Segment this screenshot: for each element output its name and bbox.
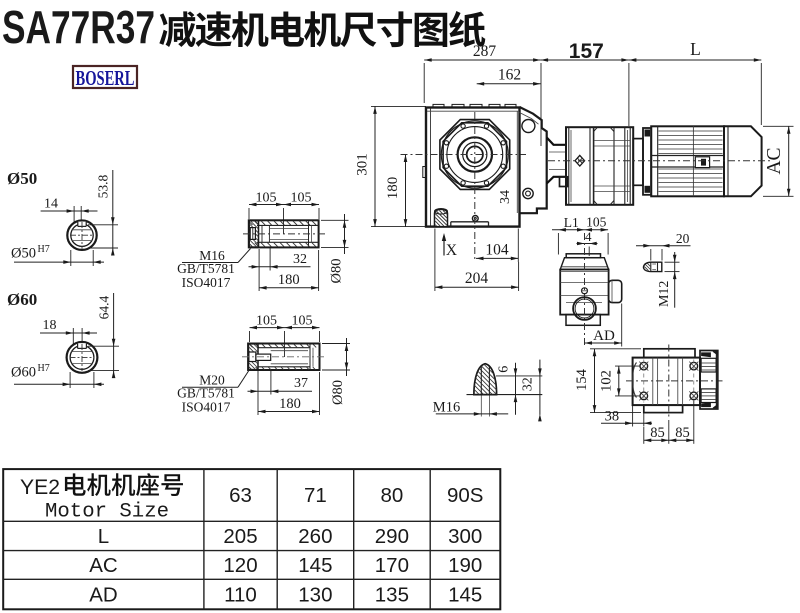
svg-text:120: 120	[223, 554, 257, 577]
svg-text:Motor Size: Motor Size	[45, 501, 169, 524]
svg-text:301: 301	[355, 153, 371, 176]
svg-text:YE2: YE2	[20, 475, 60, 499]
svg-text:53.8: 53.8	[96, 174, 111, 198]
svg-text:204: 204	[465, 270, 489, 287]
svg-text:AC: AC	[89, 554, 118, 577]
svg-text:6: 6	[497, 366, 512, 373]
svg-text:Ø60: Ø60	[7, 290, 37, 309]
svg-text:105: 105	[292, 313, 313, 328]
svg-text:71: 71	[304, 484, 327, 507]
svg-text:154: 154	[574, 368, 590, 391]
svg-text:105: 105	[291, 190, 312, 205]
svg-text:Ø80: Ø80	[330, 380, 346, 405]
svg-text:14: 14	[44, 197, 58, 212]
svg-text:102: 102	[599, 370, 615, 392]
svg-text:M16: M16	[433, 400, 460, 416]
svg-text:180: 180	[278, 272, 300, 288]
svg-text:157: 157	[569, 40, 604, 63]
svg-text:ISO4017: ISO4017	[182, 400, 231, 415]
svg-text:L: L	[98, 525, 109, 548]
svg-text:AD: AD	[593, 328, 615, 344]
svg-text:80: 80	[380, 484, 403, 507]
svg-text:GB/T5781: GB/T5781	[177, 386, 235, 401]
svg-text:37: 37	[294, 376, 308, 391]
svg-text:130: 130	[298, 584, 332, 607]
svg-text:105: 105	[256, 313, 277, 328]
svg-text:L: L	[690, 39, 701, 59]
svg-text:4: 4	[585, 229, 592, 244]
svg-text:H7: H7	[38, 244, 50, 255]
svg-text:SA77R37: SA77R37	[2, 1, 155, 53]
svg-text:110: 110	[224, 584, 257, 607]
svg-text:180: 180	[385, 177, 401, 200]
svg-text:290: 290	[375, 525, 409, 548]
svg-text:180: 180	[279, 396, 301, 412]
svg-text:63: 63	[229, 484, 252, 507]
svg-text:90S: 90S	[447, 484, 483, 507]
svg-text:287: 287	[473, 43, 497, 60]
svg-text:H7: H7	[38, 363, 50, 374]
svg-text:145: 145	[298, 554, 332, 577]
svg-text:X: X	[446, 242, 457, 259]
svg-text:AC: AC	[764, 147, 785, 174]
svg-text:L1: L1	[564, 215, 579, 230]
svg-text:Ø50: Ø50	[7, 169, 37, 188]
svg-text:Ø50: Ø50	[11, 246, 36, 262]
svg-text:GB/T5781: GB/T5781	[177, 261, 235, 276]
svg-text:105: 105	[256, 190, 277, 205]
svg-text:190: 190	[448, 554, 482, 577]
svg-text:85: 85	[650, 425, 665, 441]
svg-text:Ø60: Ø60	[11, 365, 36, 381]
svg-text:ISO4017: ISO4017	[182, 275, 231, 290]
svg-text:AD: AD	[89, 584, 117, 607]
svg-text:32: 32	[521, 377, 536, 391]
svg-text:20: 20	[676, 231, 690, 246]
svg-text:104: 104	[485, 242, 509, 259]
svg-text:Ø80: Ø80	[329, 259, 345, 284]
svg-text:170: 170	[375, 554, 409, 577]
svg-text:38: 38	[605, 409, 620, 425]
svg-text:300: 300	[448, 525, 482, 548]
svg-text:135: 135	[375, 584, 409, 607]
svg-text:162: 162	[498, 67, 521, 84]
svg-text:32: 32	[293, 252, 307, 267]
svg-text:205: 205	[223, 525, 257, 548]
svg-text:85: 85	[675, 425, 690, 441]
svg-text:18: 18	[43, 318, 57, 333]
svg-text:64.4: 64.4	[97, 295, 112, 319]
svg-text:M12: M12	[657, 281, 672, 307]
svg-text:145: 145	[448, 584, 482, 607]
svg-text:34: 34	[498, 190, 513, 204]
svg-text:BOSERL: BOSERL	[76, 66, 135, 90]
svg-text:105: 105	[586, 214, 607, 229]
svg-text:260: 260	[298, 525, 332, 548]
